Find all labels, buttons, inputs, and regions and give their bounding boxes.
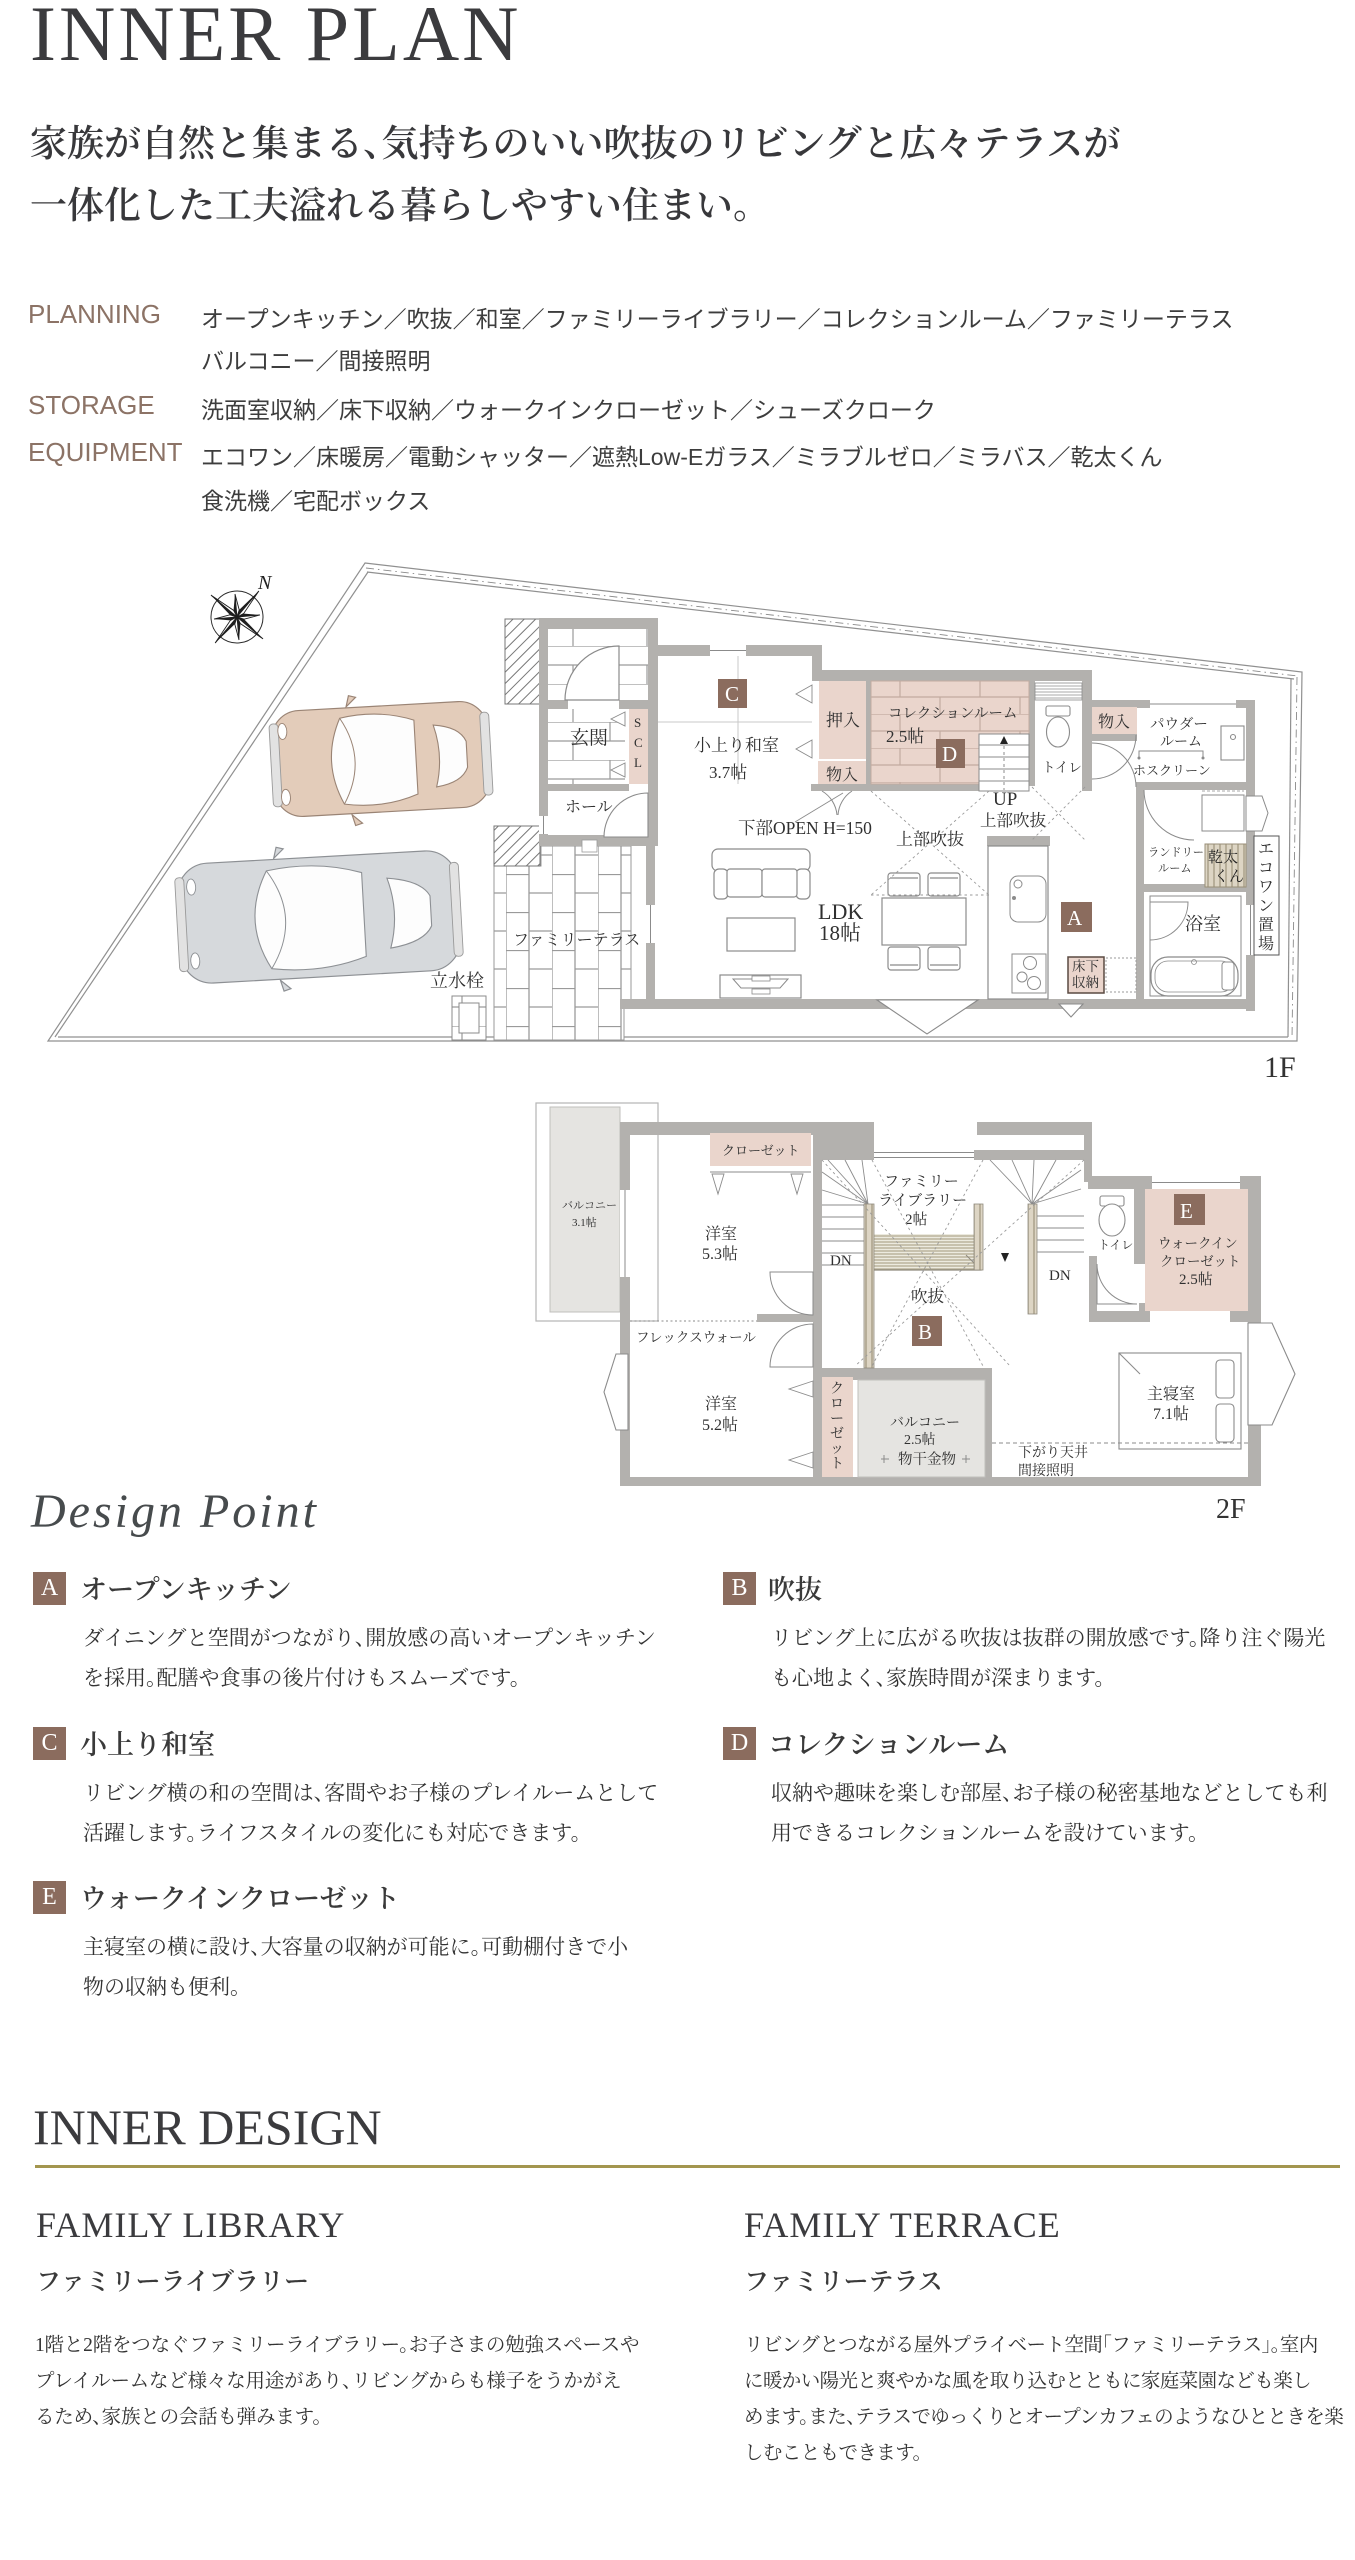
svg-text:2.5帖: 2.5帖 xyxy=(886,727,924,746)
svg-text:ロ: ロ xyxy=(830,1397,844,1412)
svg-text:主寝室: 主寝室 xyxy=(1147,1384,1195,1403)
svg-text:物入: 物入 xyxy=(1098,713,1130,731)
svg-text:立水栓: 立水栓 xyxy=(430,971,484,991)
svg-text:S: S xyxy=(634,715,641,730)
svg-text:コレクションルーム: コレクションルーム xyxy=(888,706,1018,722)
svg-text:D: D xyxy=(942,742,957,766)
svg-text:ン: ン xyxy=(1258,898,1274,915)
svg-text:パウダー: パウダー xyxy=(1150,716,1208,733)
svg-text:物干金物: 物干金物 xyxy=(898,1450,956,1468)
svg-text:E: E xyxy=(1180,1199,1193,1223)
svg-text:B: B xyxy=(918,1320,932,1344)
svg-text:ルーム: ルーム xyxy=(1158,863,1192,875)
svg-text:5.3帖: 5.3帖 xyxy=(702,1245,738,1263)
svg-text:ファミリー: ファミリー xyxy=(884,1174,959,1190)
svg-text:押入: 押入 xyxy=(826,711,860,730)
svg-text:ランドリー: ランドリー xyxy=(1148,847,1204,859)
svg-text:収納: 収納 xyxy=(1072,975,1099,990)
svg-text:ク: ク xyxy=(830,1382,844,1397)
svg-text:UP: UP xyxy=(993,789,1017,810)
svg-text:洋室: 洋室 xyxy=(705,1395,737,1413)
svg-text:ト: ト xyxy=(830,1457,844,1472)
svg-text:3.7帖: 3.7帖 xyxy=(709,763,747,782)
svg-text:物入: 物入 xyxy=(826,766,858,784)
svg-text:2.5帖: 2.5帖 xyxy=(1179,1271,1213,1288)
svg-text:クローゼット: クローゼット xyxy=(1160,1254,1240,1269)
svg-text:2帖: 2帖 xyxy=(905,1211,928,1228)
svg-text:玄関: 玄関 xyxy=(570,727,608,749)
svg-text:ウォークイン: ウォークイン xyxy=(1158,1236,1238,1251)
svg-text:下部OPEN H=150: 下部OPEN H=150 xyxy=(738,818,872,838)
svg-text:コ: コ xyxy=(1258,860,1274,877)
svg-text:小上り和室: 小上り和室 xyxy=(694,736,779,755)
svg-text:トイレ: トイレ xyxy=(1098,1238,1133,1252)
svg-text:1F: 1F xyxy=(1264,1051,1296,1084)
svg-text:床下: 床下 xyxy=(1072,958,1099,974)
svg-text:7.1帖: 7.1帖 xyxy=(1153,1405,1189,1423)
svg-text:ー: ー xyxy=(830,1412,844,1427)
svg-text:くん: くん xyxy=(1214,868,1244,885)
svg-text:2.5帖: 2.5帖 xyxy=(904,1431,936,1448)
svg-text:ルーム: ルーム xyxy=(1160,735,1202,750)
svg-text:乾太: 乾太 xyxy=(1208,848,1238,866)
svg-text:N: N xyxy=(257,572,273,594)
svg-text:バルコニー: バルコニー xyxy=(562,1200,617,1212)
svg-text:18帖: 18帖 xyxy=(819,921,861,945)
svg-text:ホール: ホール xyxy=(565,799,613,816)
svg-text:フレックスウォール: フレックスウォール xyxy=(636,1330,756,1345)
svg-text:クローゼット: クローゼット xyxy=(722,1143,799,1158)
svg-text:ワ: ワ xyxy=(1258,879,1274,896)
svg-text:ライブラリー: ライブラリー xyxy=(878,1192,967,1209)
svg-text:DN: DN xyxy=(1049,1268,1071,1284)
svg-text:ファミリーテラス: ファミリーテラス xyxy=(513,932,640,949)
svg-text:置: 置 xyxy=(1258,916,1274,934)
svg-text:DN: DN xyxy=(830,1253,852,1269)
svg-text:ホスクリーン: ホスクリーン xyxy=(1133,763,1211,778)
svg-text:場: 場 xyxy=(1258,935,1274,953)
svg-text:3.1帖: 3.1帖 xyxy=(572,1215,597,1229)
svg-text:吹抜: 吹抜 xyxy=(911,1287,945,1306)
svg-text:C: C xyxy=(634,735,643,750)
svg-text:浴室: 浴室 xyxy=(1185,914,1221,934)
svg-text:C: C xyxy=(725,682,739,706)
svg-text:L: L xyxy=(634,755,642,770)
svg-text:エ: エ xyxy=(1258,841,1274,858)
svg-text:トイレ: トイレ xyxy=(1042,760,1082,775)
svg-text:ゼ: ゼ xyxy=(830,1426,844,1442)
svg-text:上部吹抜: 上部吹抜 xyxy=(896,830,964,849)
svg-text:バルコニー: バルコニー xyxy=(890,1416,960,1431)
svg-text:ッ: ッ xyxy=(830,1442,844,1457)
svg-text:A: A xyxy=(1067,906,1083,930)
svg-text:2F: 2F xyxy=(1216,1494,1246,1525)
svg-text:上部吹抜: 上部吹抜 xyxy=(980,811,1047,830)
svg-text:5.2帖: 5.2帖 xyxy=(702,1416,738,1434)
svg-text:洋室: 洋室 xyxy=(705,1225,737,1243)
svg-text:間接照明: 間接照明 xyxy=(1018,1462,1074,1479)
svg-text:下がり天井: 下がり天井 xyxy=(1018,1445,1088,1461)
